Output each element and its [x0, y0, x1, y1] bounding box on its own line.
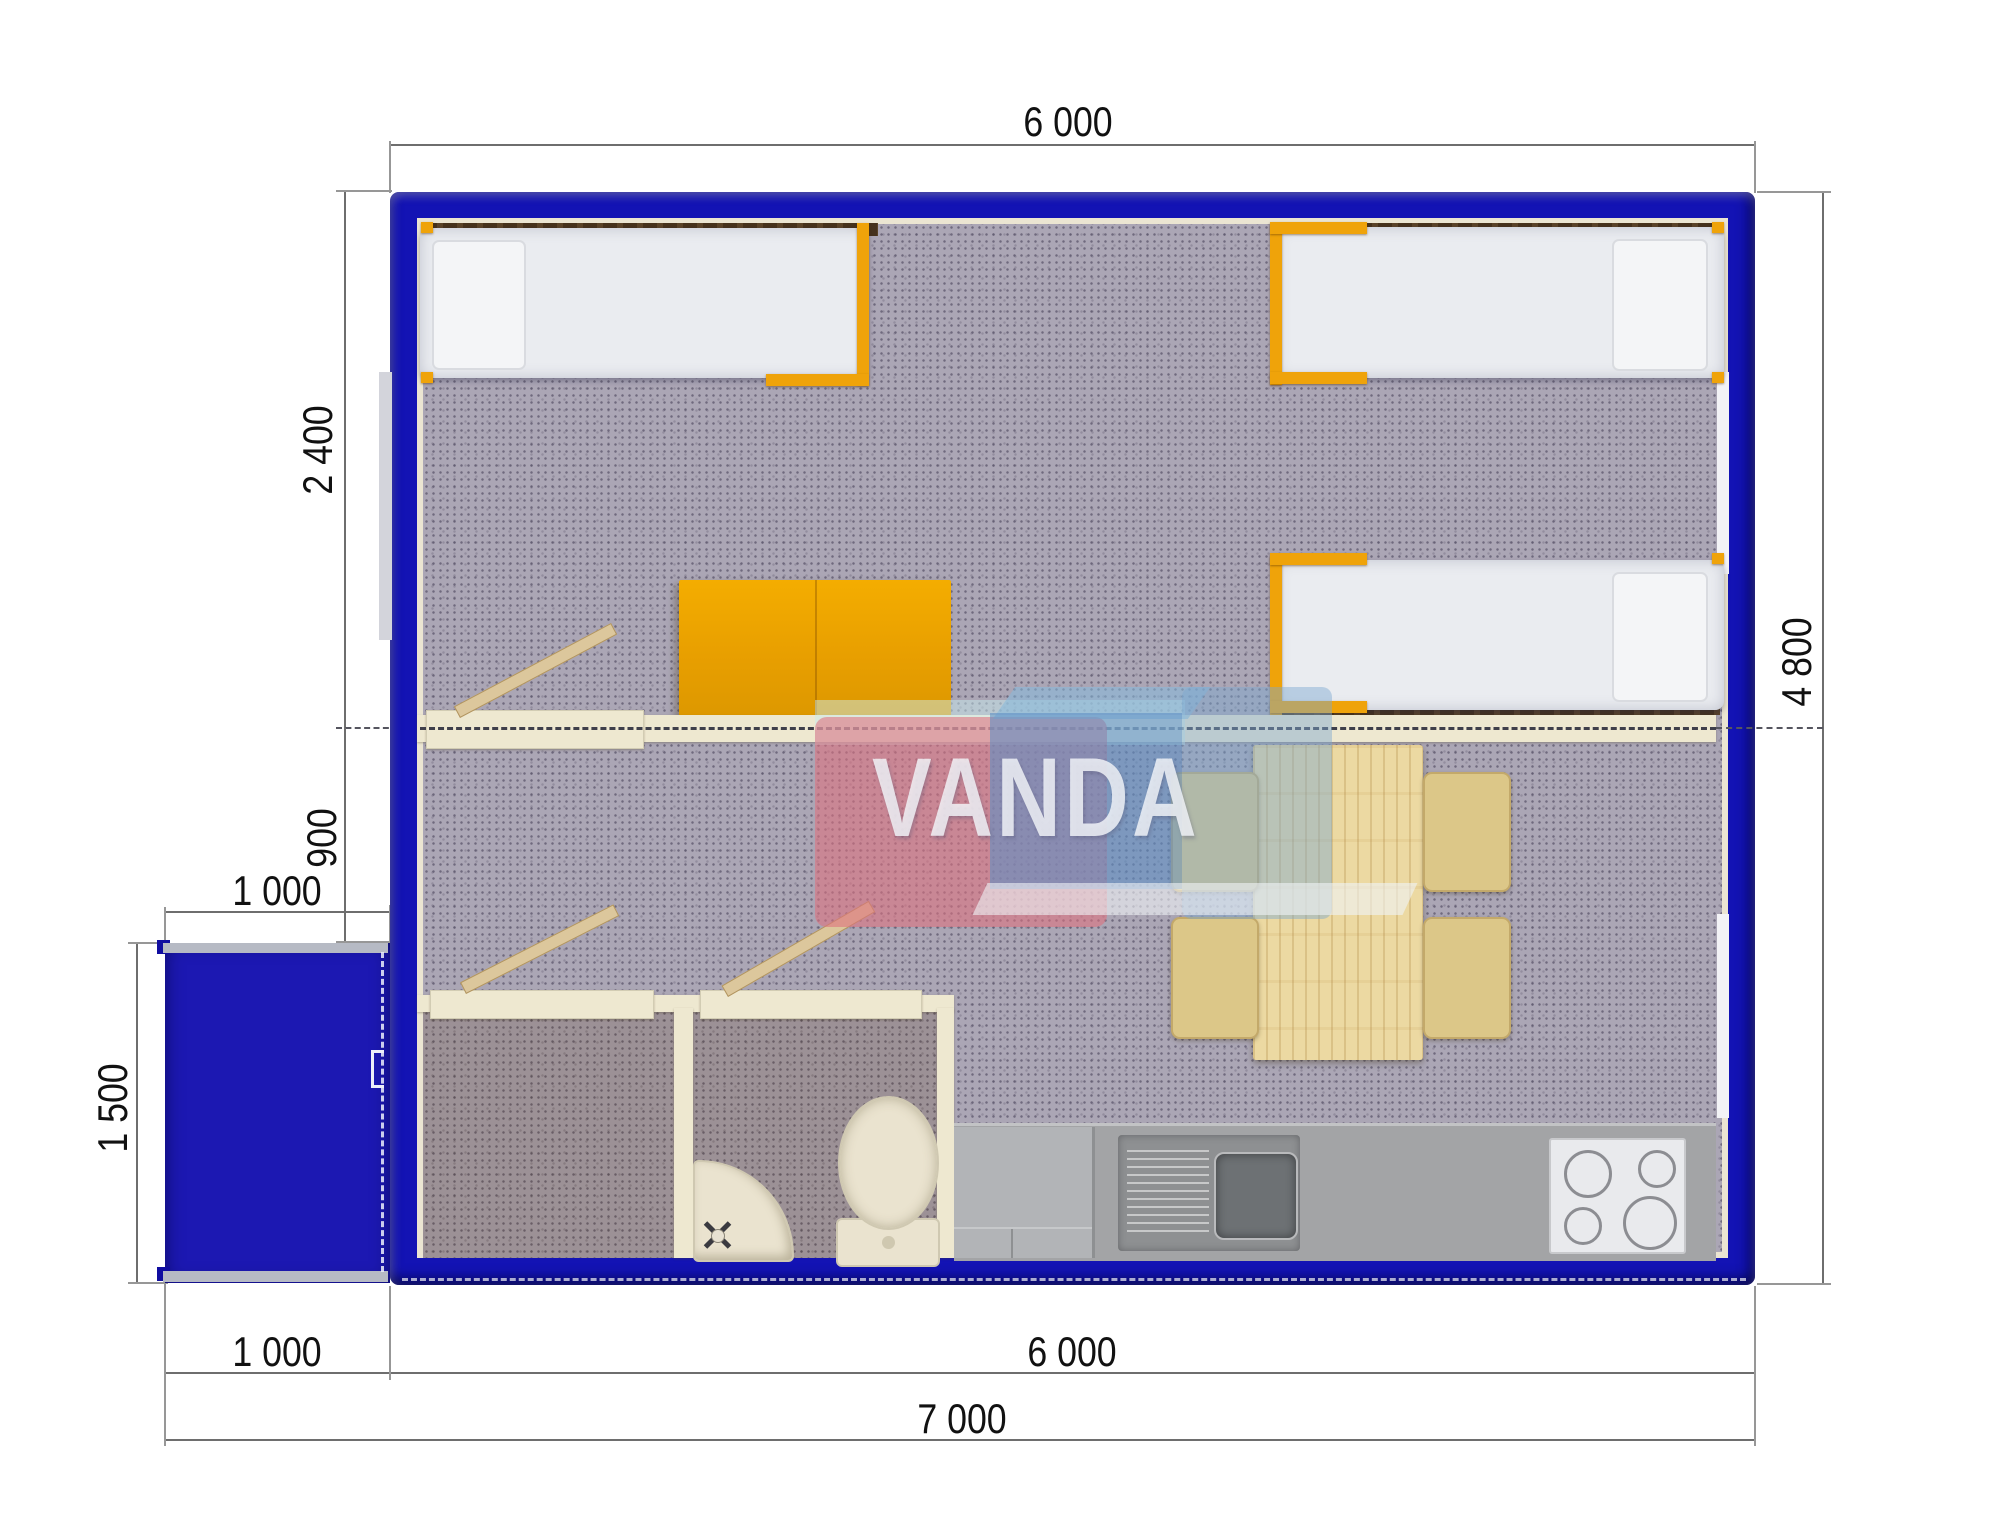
- watermark: VANDA: [812, 675, 1432, 945]
- dim-ext-line: [1754, 1380, 1756, 1446]
- dim-ext-line: [1757, 1283, 1831, 1285]
- window-right-wall-lower: [1717, 914, 1729, 1118]
- dim-label-annex-depth: 1 500: [89, 1063, 137, 1152]
- porch-threshold-top: [163, 943, 388, 953]
- sink-drainboard: [1127, 1150, 1209, 1238]
- dim-ext-line: [389, 141, 391, 193]
- burner-icon: [1638, 1150, 1676, 1188]
- entrance-porch: [165, 943, 390, 1283]
- dim-ext-line: [1757, 191, 1831, 193]
- wc-right-wall: [937, 1008, 954, 1258]
- bed-3-frame: [1270, 553, 1367, 565]
- kitchen-sink-unit: [1118, 1135, 1300, 1251]
- bathroom-door-frame: [430, 990, 654, 1019]
- bed-1-frame: [421, 222, 433, 233]
- bed-2-frame: [1270, 222, 1367, 234]
- window-right-wall-upper: [1717, 372, 1729, 574]
- bed-2-frame: [1270, 372, 1367, 384]
- bed-1-frame: [857, 223, 869, 385]
- dim-label-bedroom-depth: 2 400: [294, 405, 342, 494]
- cabinet-divider: [954, 1227, 1092, 1229]
- bed-1-frame: [766, 374, 869, 386]
- dim-label-total-width: 7 000: [917, 1395, 1006, 1443]
- faucet-icon: [700, 1218, 734, 1252]
- dim-ext-line: [1754, 141, 1756, 193]
- bed-2-frame: [1712, 372, 1724, 383]
- dim-line-left-2400: [344, 190, 346, 728]
- dim-line-right-4800: [1822, 192, 1824, 1284]
- kitchen-cabinet: [954, 1127, 1095, 1258]
- burner-icon: [1623, 1196, 1677, 1250]
- bottom-wall-seam: [402, 1278, 1746, 1281]
- stove-hob: [1549, 1138, 1686, 1254]
- burner-icon: [1564, 1207, 1602, 1245]
- chair: [1423, 917, 1511, 1039]
- dim-label-side-depth: 4 800: [1773, 617, 1821, 706]
- bathroom-divider-wall: [674, 1008, 693, 1258]
- entrance-door-opening: [381, 952, 384, 1272]
- window-left-wall: [379, 372, 392, 640]
- bed-1-frame: [421, 372, 433, 383]
- dim-ext-line: [1754, 1286, 1756, 1380]
- dim-line-bottom-row1: [165, 1372, 1755, 1374]
- floor-plan: 6 000 4 800 2 400 900 1 000 1 500 1 000 …: [0, 0, 2000, 1537]
- dim-label-bottom-annex-width: 1 000: [232, 1328, 321, 1376]
- dim-label-annex-width: 1 000: [232, 867, 321, 915]
- toilet-bowl: [838, 1096, 939, 1230]
- porch-threshold-bottom: [163, 1271, 388, 1282]
- dim-label-top-width: 6 000: [1023, 98, 1112, 146]
- dim-ext-line: [164, 1380, 166, 1446]
- faucet-knob: [711, 1229, 725, 1243]
- sink-basin: [1214, 1152, 1298, 1240]
- dim-ext-line: [128, 1282, 168, 1284]
- dim-ext-line: [164, 907, 166, 944]
- dim-ext-line-dashed: [1716, 727, 1823, 729]
- bed-1-pillow: [432, 240, 526, 370]
- dim-ext-line: [389, 1286, 391, 1380]
- wc-door-frame: [700, 990, 922, 1019]
- dim-label-entry-opening: 900: [298, 808, 346, 868]
- toilet-flush-button: [882, 1236, 895, 1249]
- watermark-banner: [973, 883, 1418, 915]
- bed-3-frame: [1712, 553, 1724, 564]
- chair: [1423, 772, 1511, 892]
- dim-ext-line: [336, 190, 392, 192]
- watermark-text: VANDA: [820, 733, 1252, 862]
- bed-2-frame: [1712, 222, 1724, 233]
- entrance-door-handle-icon: [371, 1050, 384, 1088]
- burner-icon: [1564, 1150, 1612, 1198]
- bed-2-frame: [1270, 224, 1282, 385]
- shower-room-floor: [423, 1010, 676, 1258]
- dim-label-bottom-main-width: 6 000: [1027, 1328, 1116, 1376]
- bed-3-pillow: [1612, 572, 1708, 702]
- dim-ext-line: [164, 1284, 166, 1380]
- cabinet-divider: [1011, 1229, 1013, 1258]
- bed-2-pillow: [1612, 239, 1708, 371]
